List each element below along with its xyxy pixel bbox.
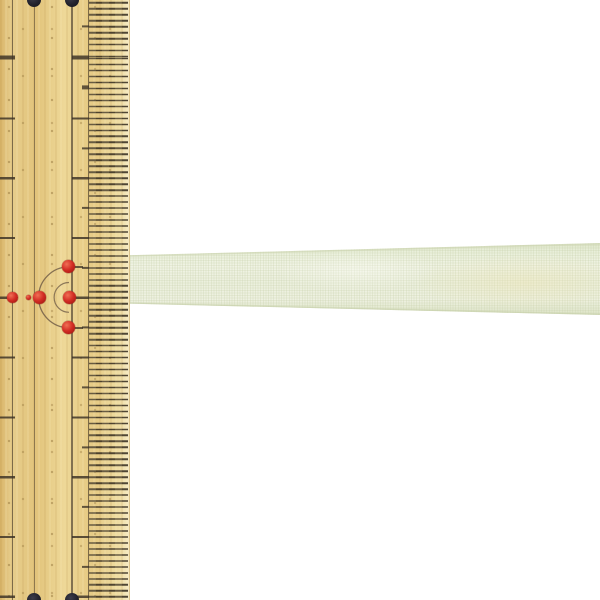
marker-row-tick [74,327,83,329]
red-marker-dot-small [26,295,31,300]
red-marker-dot [63,291,76,304]
ribbon-bottom-edge [60,300,600,316]
ribbon-top-edge [60,242,600,259]
ruler-hole-icon [27,0,41,7]
red-marker-dot [7,292,18,303]
product-photo [0,0,600,600]
ruler-hole-icon [27,593,41,600]
red-marker-dot [33,291,46,304]
bamboo-ruler [0,0,130,600]
ruler-halfcm-ticks [82,0,89,600]
red-marker-dot [62,321,75,334]
organza-ribbon [60,241,600,316]
ruler-hole-icon [65,593,79,600]
marker-row-tick [74,266,83,268]
ruler-mm-ticks [89,0,128,600]
